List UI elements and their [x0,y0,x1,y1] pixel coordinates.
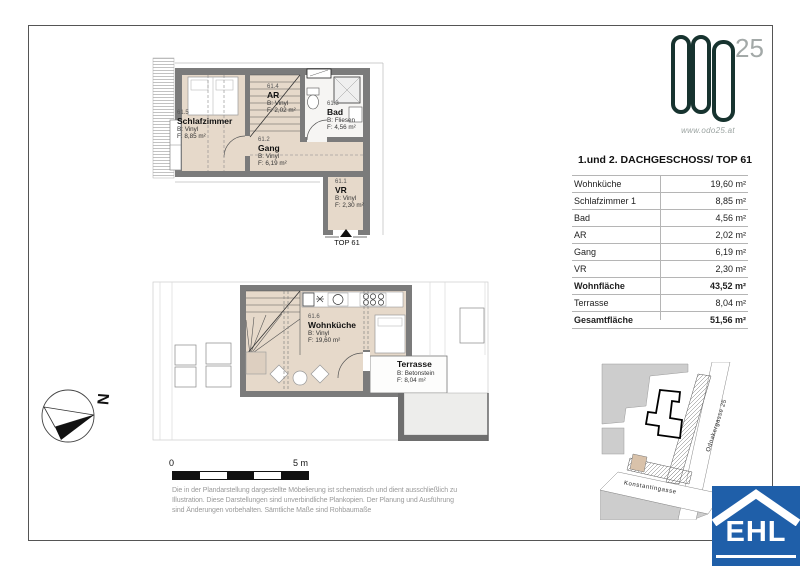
highlighted-unit [630,454,647,472]
north-label: N [92,392,111,405]
lower-floorplan [150,275,500,450]
room-label-bad: 61.3 Bad B: Fliesen F: 4,56 m² [327,101,356,131]
table-divider [660,175,661,320]
scale-bar [172,471,309,480]
ehl-text: EHL [718,516,794,549]
north-arrow-icon [38,386,100,448]
scale-end-label: 5 m [293,458,308,468]
table-icon [293,371,307,385]
ehl-underline [716,555,796,558]
scale-start-label: 0 [169,458,174,468]
room-label-terrasse: Terrasse B: Betonstein F: 8,04 m² [397,360,434,384]
room-label-gang: 61.2 Gang B: Vinyl F: 6,19 m² [258,137,287,167]
room-label-wohnkueche: 61.6 Wohnküche B: Vinyl F: 19,60 m² [308,314,356,344]
room-label-schlafzimmer: 61.5 Schlafzimmer B: Vinyl F: 8,85 m² [177,110,232,140]
ehl-logo: EHL [712,486,800,566]
disclaimer-text: Die in der Plandarstellung dargestellte … [172,486,457,516]
plan-sheet: 25 www.odo25.at 1.und 2. DACHGESCHOSS/ T… [0,0,800,566]
entrance-label: TOP 61 [330,238,364,247]
odo25-logo-icon [670,34,740,124]
toilet-icon [307,88,319,95]
sofa-icon [375,315,405,353]
plan-title: 1.und 2. DACHGESCHOSS/ TOP 61 [570,154,760,166]
kitchen-counter [302,292,403,307]
room-label-vr: 61.1 VR B: Vinyl F: 2,30 m² [335,179,364,209]
room-label-ar: 61.4 AR B: Vinyl F: 2,02 m² [267,84,296,114]
open-terrace [404,393,488,435]
website-text: www.odo25.at [664,126,752,135]
logo-number: 25 [735,33,764,64]
